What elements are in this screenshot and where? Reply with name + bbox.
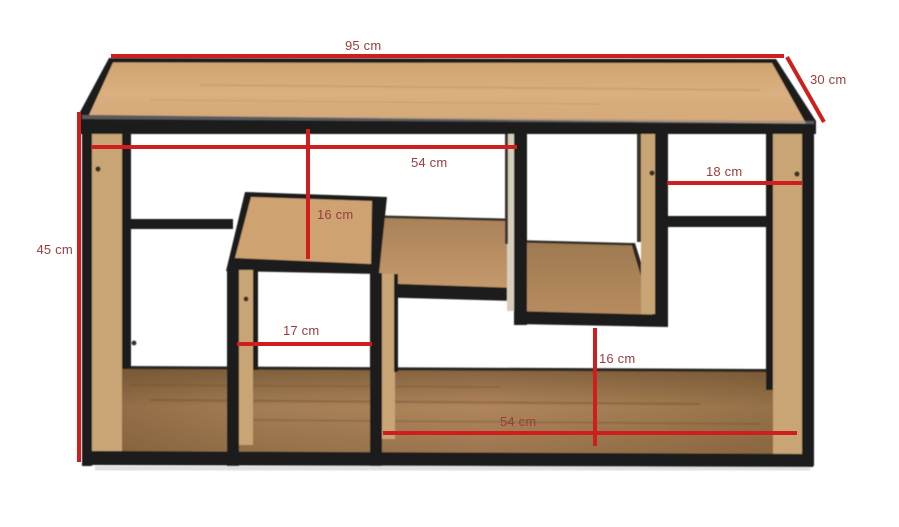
svg-text:54 cm: 54 cm <box>411 155 447 170</box>
svg-text:16 cm: 16 cm <box>599 351 635 366</box>
svg-text:17 cm: 17 cm <box>283 323 319 338</box>
svg-text:30 cm: 30 cm <box>810 72 846 87</box>
svg-text:18 cm: 18 cm <box>706 164 742 179</box>
svg-text:54 cm: 54 cm <box>500 414 536 429</box>
svg-text:16 cm: 16 cm <box>317 207 353 222</box>
svg-text:95 cm: 95 cm <box>345 38 381 53</box>
svg-text:45 cm: 45 cm <box>37 242 73 257</box>
